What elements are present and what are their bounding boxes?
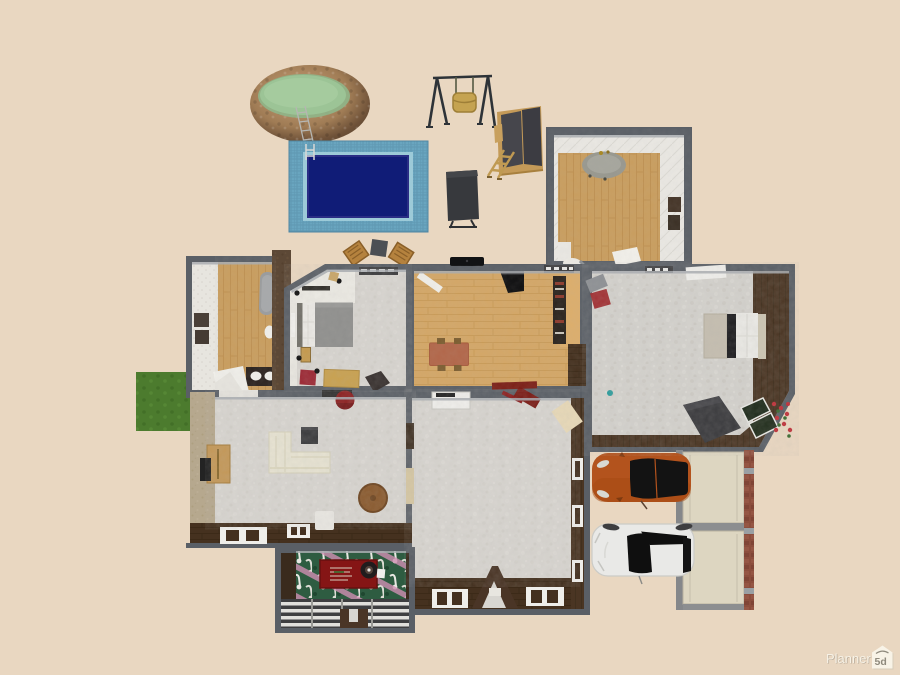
- svg-text:5d: 5d: [875, 656, 887, 668]
- svg-text:Planner: Planner: [826, 651, 871, 666]
